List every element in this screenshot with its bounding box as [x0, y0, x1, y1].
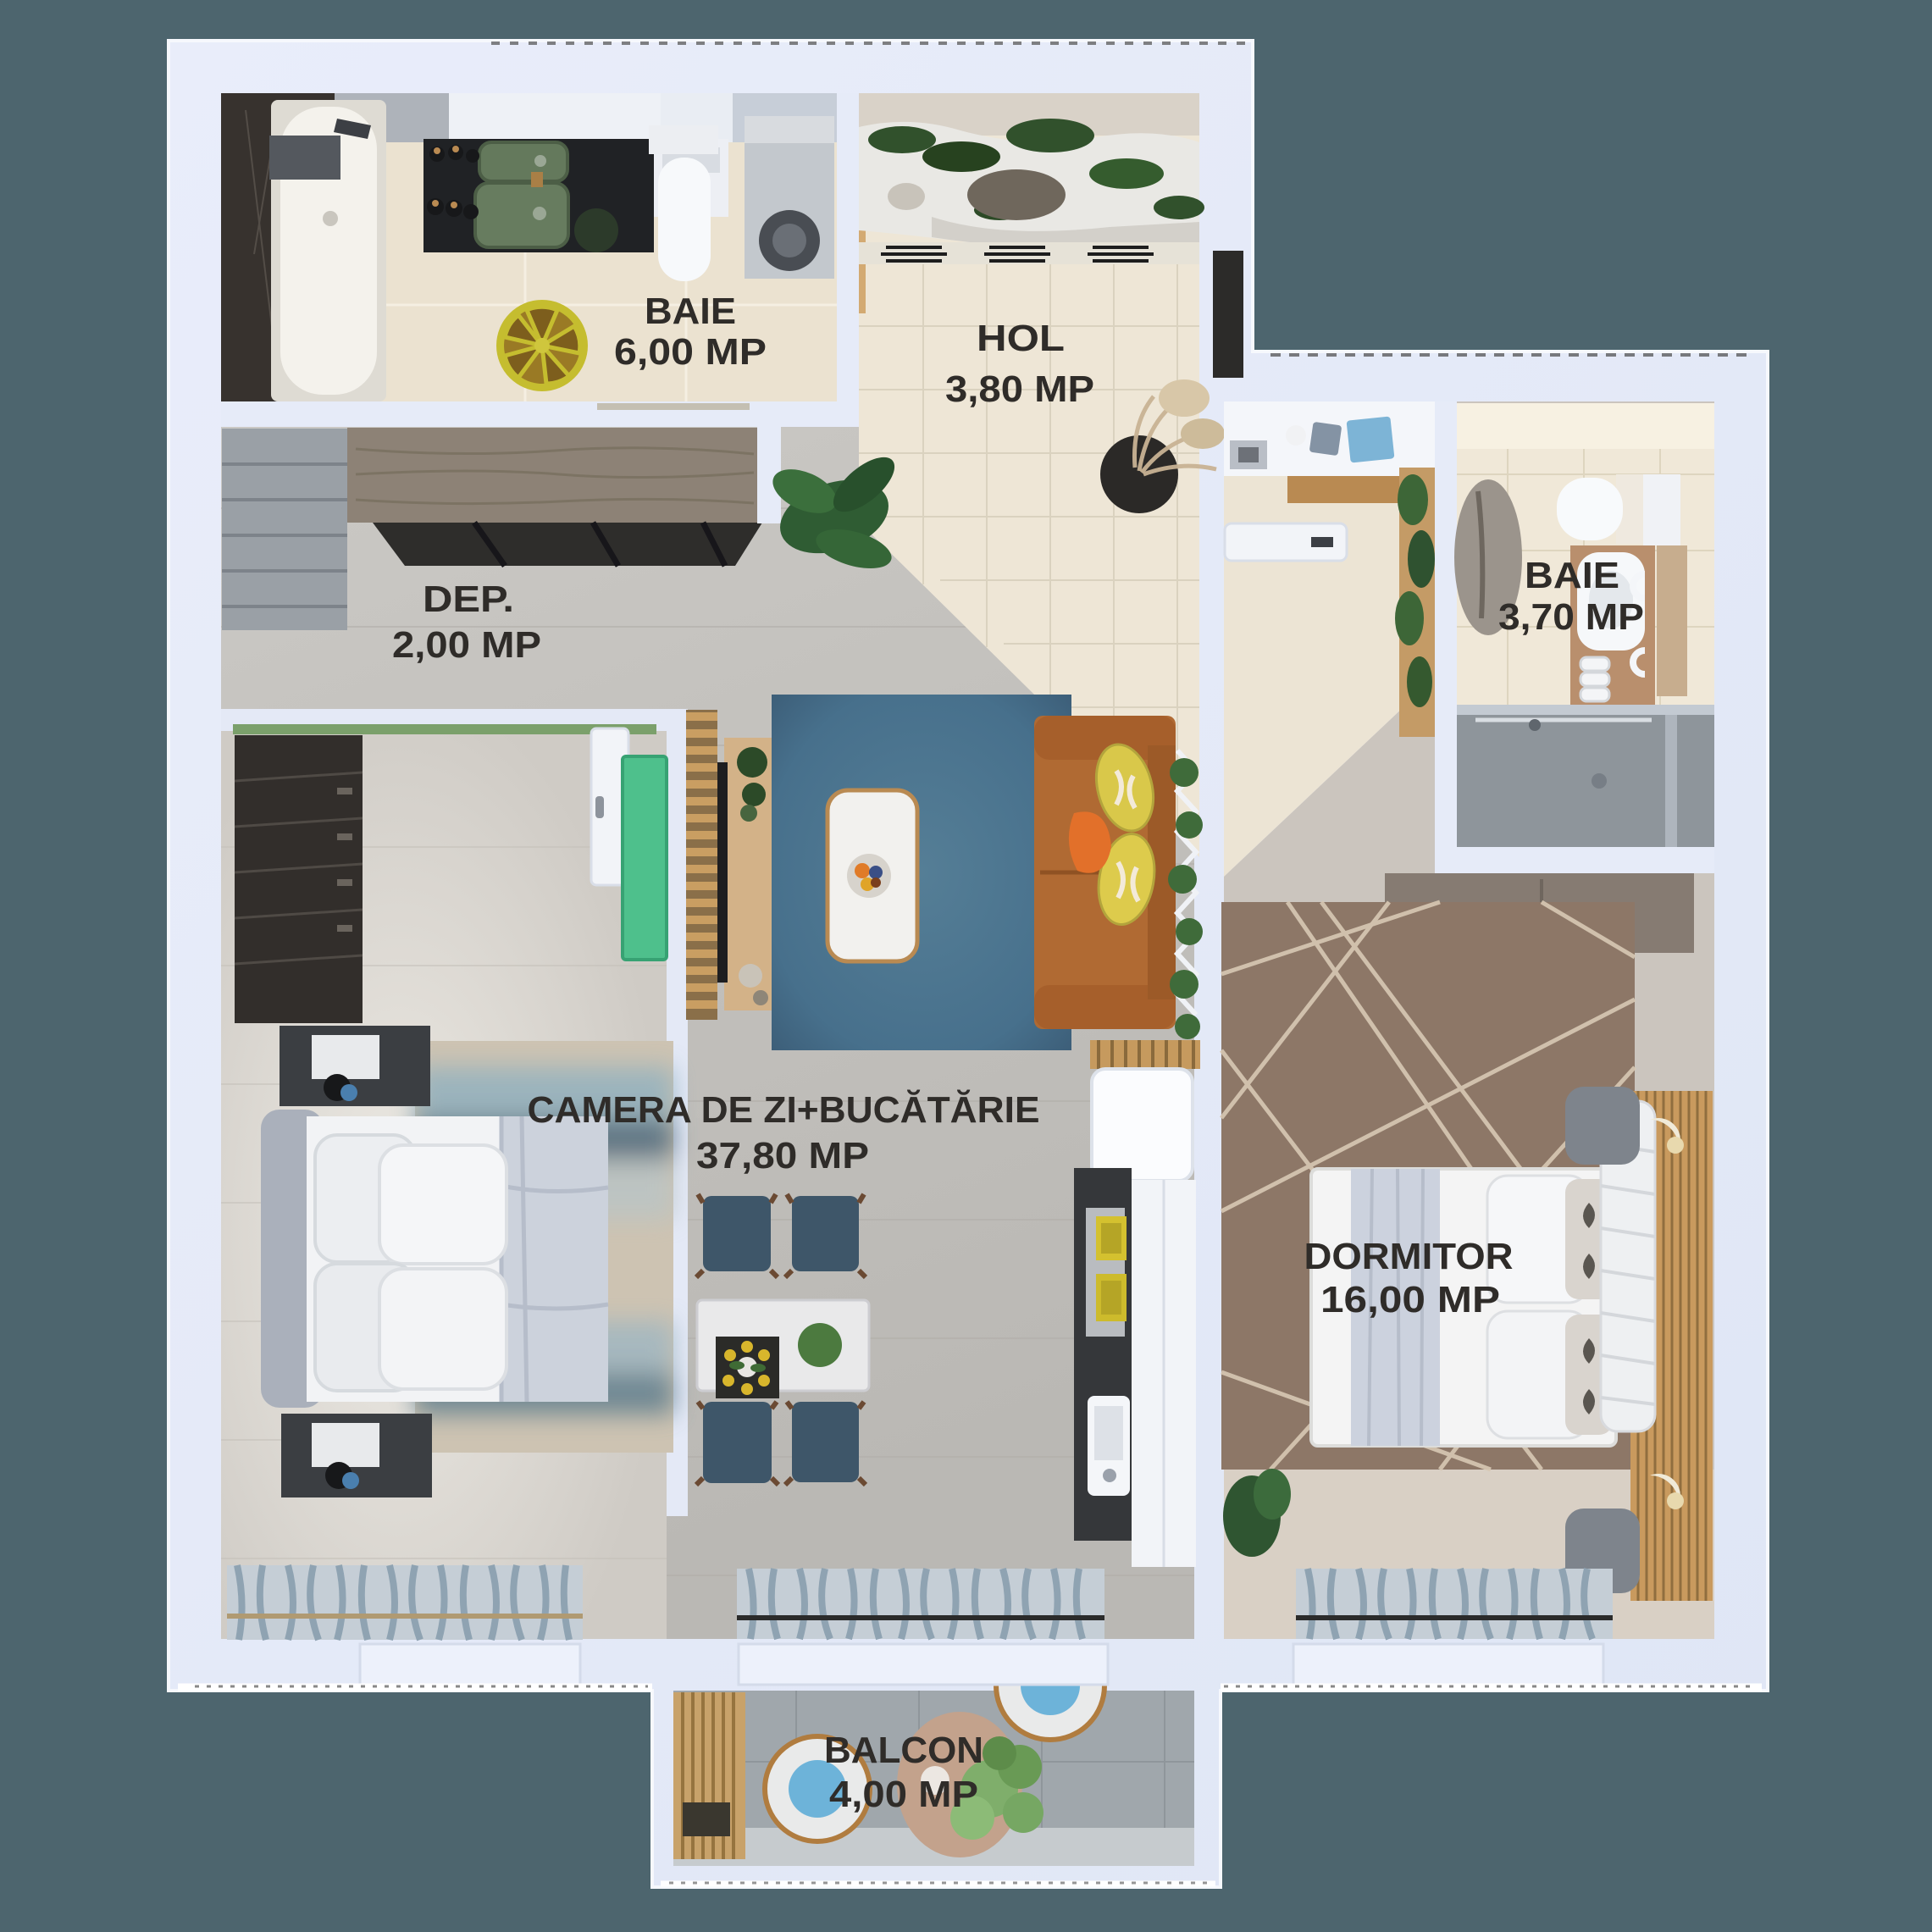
svg-text:3,80 MP: 3,80 MP	[945, 368, 1094, 410]
svg-text:6,00 MP: 6,00 MP	[614, 331, 767, 373]
svg-text:DORMITOR: DORMITOR	[1304, 1236, 1514, 1277]
svg-text:CAMERA DE ZI+BUCĂTĂRIE: CAMERA DE ZI+BUCĂTĂRIE	[528, 1088, 1040, 1131]
svg-text:BALCON: BALCON	[824, 1730, 983, 1771]
svg-text:3,70 MP: 3,70 MP	[1498, 596, 1644, 638]
svg-text:37,80 MP: 37,80 MP	[696, 1135, 869, 1176]
svg-text:HOL: HOL	[977, 318, 1065, 359]
svg-text:2,00 MP: 2,00 MP	[392, 624, 541, 666]
svg-text:BAIE: BAIE	[645, 291, 736, 332]
svg-text:4,00 MP: 4,00 MP	[829, 1774, 978, 1815]
svg-text:DEP.: DEP.	[423, 578, 514, 620]
svg-text:BAIE: BAIE	[1525, 555, 1619, 596]
svg-text:16,00 MP: 16,00 MP	[1320, 1279, 1500, 1320]
